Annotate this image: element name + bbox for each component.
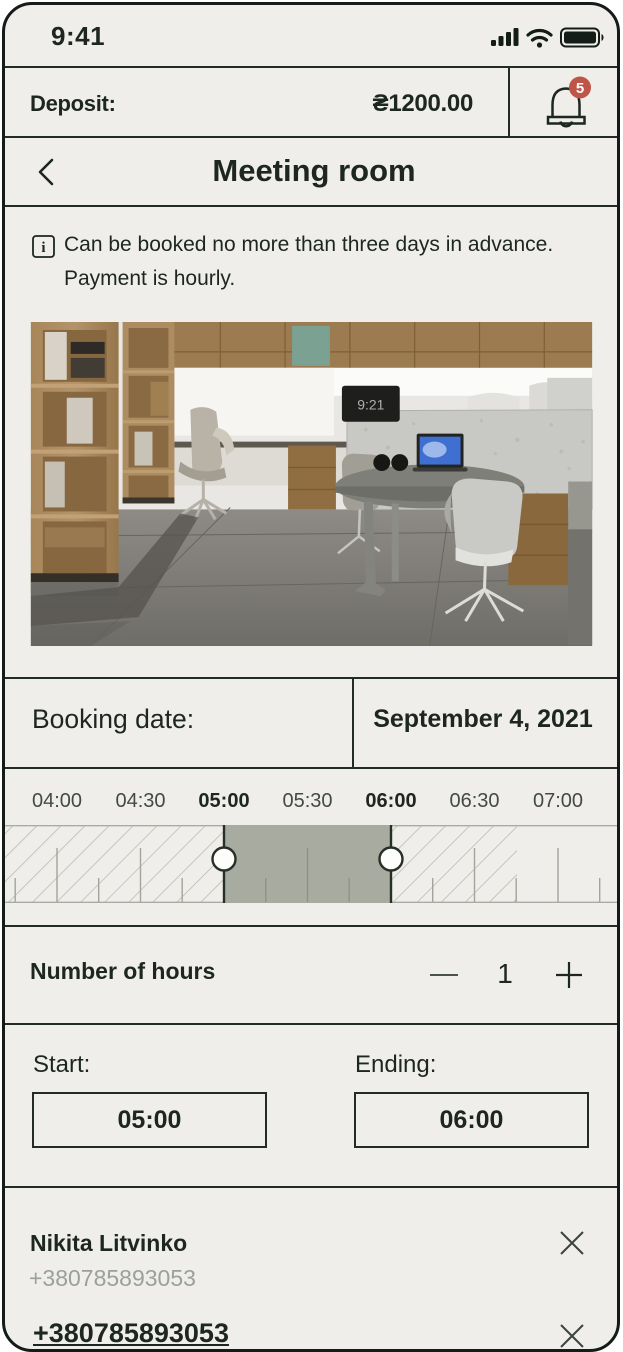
svg-text:04:00: 04:00 (32, 790, 82, 812)
svg-text:i: i (41, 240, 45, 256)
svg-text:05:00: 05:00 (198, 790, 249, 812)
svg-text:04:30: 04:30 (115, 790, 165, 812)
svg-text:5: 5 (576, 80, 584, 97)
svg-text:05:30: 05:30 (282, 790, 332, 812)
svg-text:9:21: 9:21 (357, 397, 384, 413)
svg-text:06:30: 06:30 (449, 790, 499, 812)
svg-text:07:00: 07:00 (533, 790, 583, 812)
svg-text:06:00: 06:00 (365, 790, 416, 812)
